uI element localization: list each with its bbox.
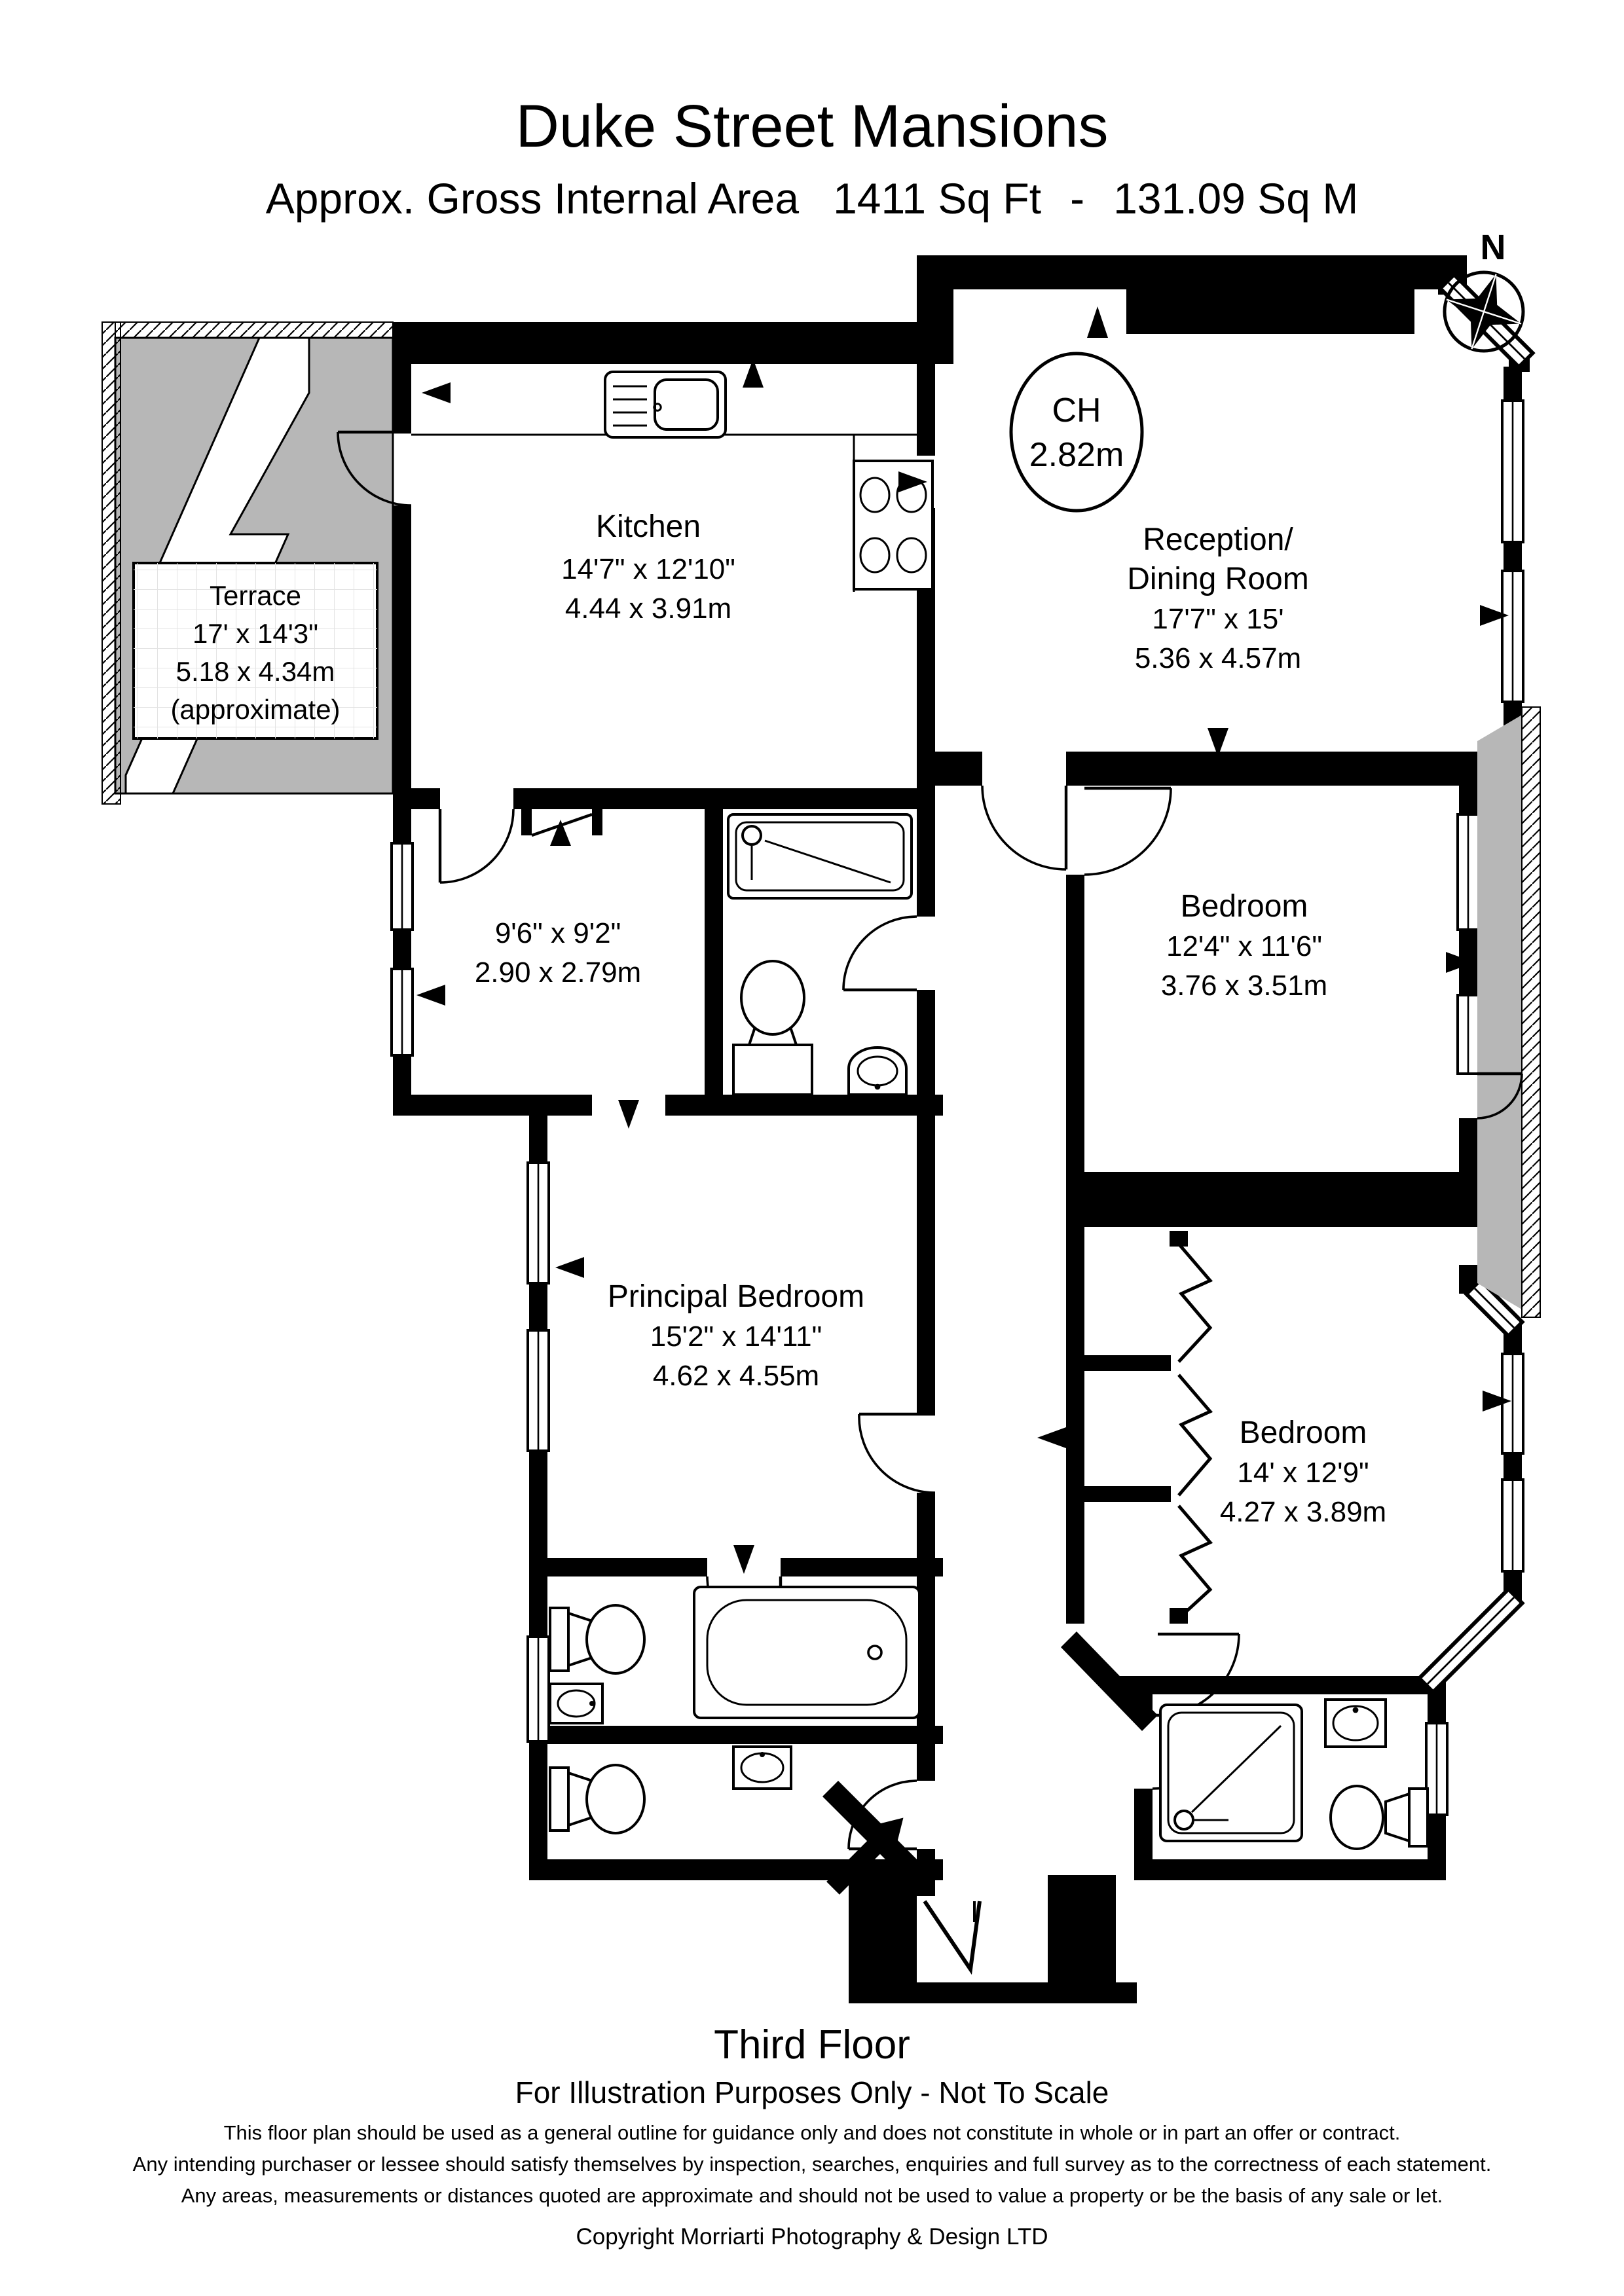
entrance-door-leaves [925, 1901, 980, 1969]
copyright: Copyright Morriarti Photography & Design… [576, 2224, 1048, 2250]
arrow-left-icon [422, 382, 451, 403]
toilet-icon [550, 1605, 644, 1673]
area-label: Approx. Gross Internal Area [266, 174, 800, 223]
window [392, 843, 413, 930]
bathtub-icon [694, 1587, 919, 1718]
toilet-icon [1331, 1786, 1428, 1849]
bedroom1-metric: 3.76 x 3.51m [1161, 970, 1327, 1002]
principal-imperial: 15'2" x 14'11" [650, 1321, 822, 1353]
window [1458, 814, 1479, 930]
sink-icon [1325, 1700, 1386, 1747]
light-well [1477, 707, 1540, 1317]
arrow-down-icon [733, 1545, 754, 1574]
reception-imperial: 17'7" x 15' [1152, 603, 1283, 635]
toilet-icon [733, 961, 812, 1095]
terrace-hatch-top [115, 322, 393, 338]
kitchen-sink-icon [605, 372, 726, 437]
bifold-door [1179, 1244, 1210, 1362]
reception-name1: Reception/ [1143, 522, 1293, 557]
windows [392, 280, 1527, 1815]
arrow-left-icon [1037, 1427, 1066, 1448]
window [1426, 1723, 1447, 1815]
arrow-left-icon [416, 985, 445, 1006]
page-title: Duke Street Mansions [515, 93, 1108, 160]
bifold-door [1179, 1375, 1210, 1495]
sink-icon [733, 1747, 791, 1789]
area-sqm: 131.09 Sq M [1113, 174, 1358, 223]
terrace-metric: 5.18 x 4.34m [176, 656, 335, 687]
terrace-hatch-left [102, 322, 120, 804]
disclaimer-line3: Any areas, measurements or distances quo… [181, 2184, 1443, 2207]
kitchen-label: Kitchen 14'7" x 12'10" 4.44 x 3.91m [561, 509, 735, 625]
arrow-down-icon [618, 1100, 639, 1129]
area-dash: - [1070, 174, 1084, 223]
bedroom1-label: Bedroom 12'4" x 11'6" 3.76 x 3.51m [1161, 889, 1327, 1002]
principal-bedroom-label: Principal Bedroom 15'2" x 14'11" 4.62 x … [608, 1279, 864, 1392]
reception-metric: 5.36 x 4.57m [1135, 642, 1301, 674]
bedroom2-label: Bedroom 14' x 12'9" 4.27 x 3.89m [1220, 1415, 1386, 1528]
terrace-note: (approximate) [170, 694, 340, 725]
principal-metric: 4.62 x 4.55m [653, 1360, 819, 1392]
area-sqft: 1411 Sq Ft [833, 174, 1041, 223]
shower-icon [1160, 1705, 1302, 1841]
window [1502, 401, 1523, 542]
ch-value: 2.82m [1029, 436, 1124, 474]
bedroom2-imperial: 14' x 12'9" [1237, 1457, 1369, 1489]
window [1458, 995, 1479, 1074]
terrace-name: Terrace [210, 580, 301, 611]
disclaimer-line2: Any intending purchaser or lessee should… [133, 2153, 1492, 2176]
floorplan-drawing: Duke Street Mansions Approx. Gross Inter… [0, 0, 1624, 2295]
scale-note: For Illustration Purposes Only - Not To … [515, 2075, 1109, 2109]
bifold-door [1179, 1506, 1210, 1618]
footer: Third Floor For Illustration Purposes On… [133, 2022, 1492, 2250]
inner-room-imperial: 9'6" x 9'2" [495, 917, 621, 949]
bedroom1-name: Bedroom [1181, 889, 1308, 924]
bedroom1-imperial: 12'4" x 11'6" [1166, 930, 1322, 962]
floorplan-page: Duke Street Mansions Approx. Gross Inter… [0, 0, 1624, 2296]
terrace-area: Terrace 17' x 14'3" 5.18 x 4.34m (approx… [102, 322, 393, 804]
kitchen-metric: 4.44 x 3.91m [565, 592, 731, 625]
bedroom2-name: Bedroom [1240, 1415, 1367, 1450]
light-well-hatch [1522, 707, 1540, 1317]
bay-window-bedroom2-lower [1425, 1595, 1517, 1686]
page-subtitle: Approx. Gross Internal Area1411 Sq Ft-13… [266, 174, 1359, 223]
window [392, 969, 413, 1055]
reception-name2: Dining Room [1127, 562, 1308, 596]
disclaimer-line1: This floor plan should be used as a gene… [224, 2121, 1401, 2144]
shower-icon [728, 814, 912, 898]
ceiling-height-badge: CH 2.82m [1011, 354, 1142, 511]
sink-icon [849, 1048, 906, 1095]
window [1502, 1480, 1523, 1571]
inner-room-metric: 2.90 x 2.79m [475, 957, 641, 989]
principal-name: Principal Bedroom [608, 1279, 864, 1314]
reception-label: Reception/ Dining Room 17'7" x 15' 5.36 … [1127, 522, 1308, 674]
compass-north-label: N [1481, 228, 1506, 267]
header: Duke Street Mansions Approx. Gross Inter… [266, 93, 1359, 223]
floor-name: Third Floor [714, 2022, 910, 2068]
kitchen-name: Kitchen [596, 509, 701, 544]
bedroom2-metric: 4.27 x 3.89m [1220, 1496, 1386, 1528]
kitchen-imperial: 14'7" x 12'10" [561, 553, 735, 585]
window [1502, 571, 1523, 702]
toilet-icon [550, 1765, 644, 1833]
inner-room-label: 9'6" x 9'2" 2.90 x 2.79m [475, 917, 641, 989]
arrow-up-icon [1087, 306, 1108, 338]
window [528, 1163, 549, 1283]
arrow-left-icon [555, 1257, 584, 1278]
window [1502, 1354, 1523, 1453]
window [528, 1637, 549, 1741]
window [528, 1330, 549, 1451]
sink-icon [550, 1684, 602, 1723]
ch-label: CH [1052, 392, 1101, 429]
light-well-floor [1477, 715, 1522, 1309]
terrace-imperial: 17' x 14'3" [193, 618, 318, 649]
